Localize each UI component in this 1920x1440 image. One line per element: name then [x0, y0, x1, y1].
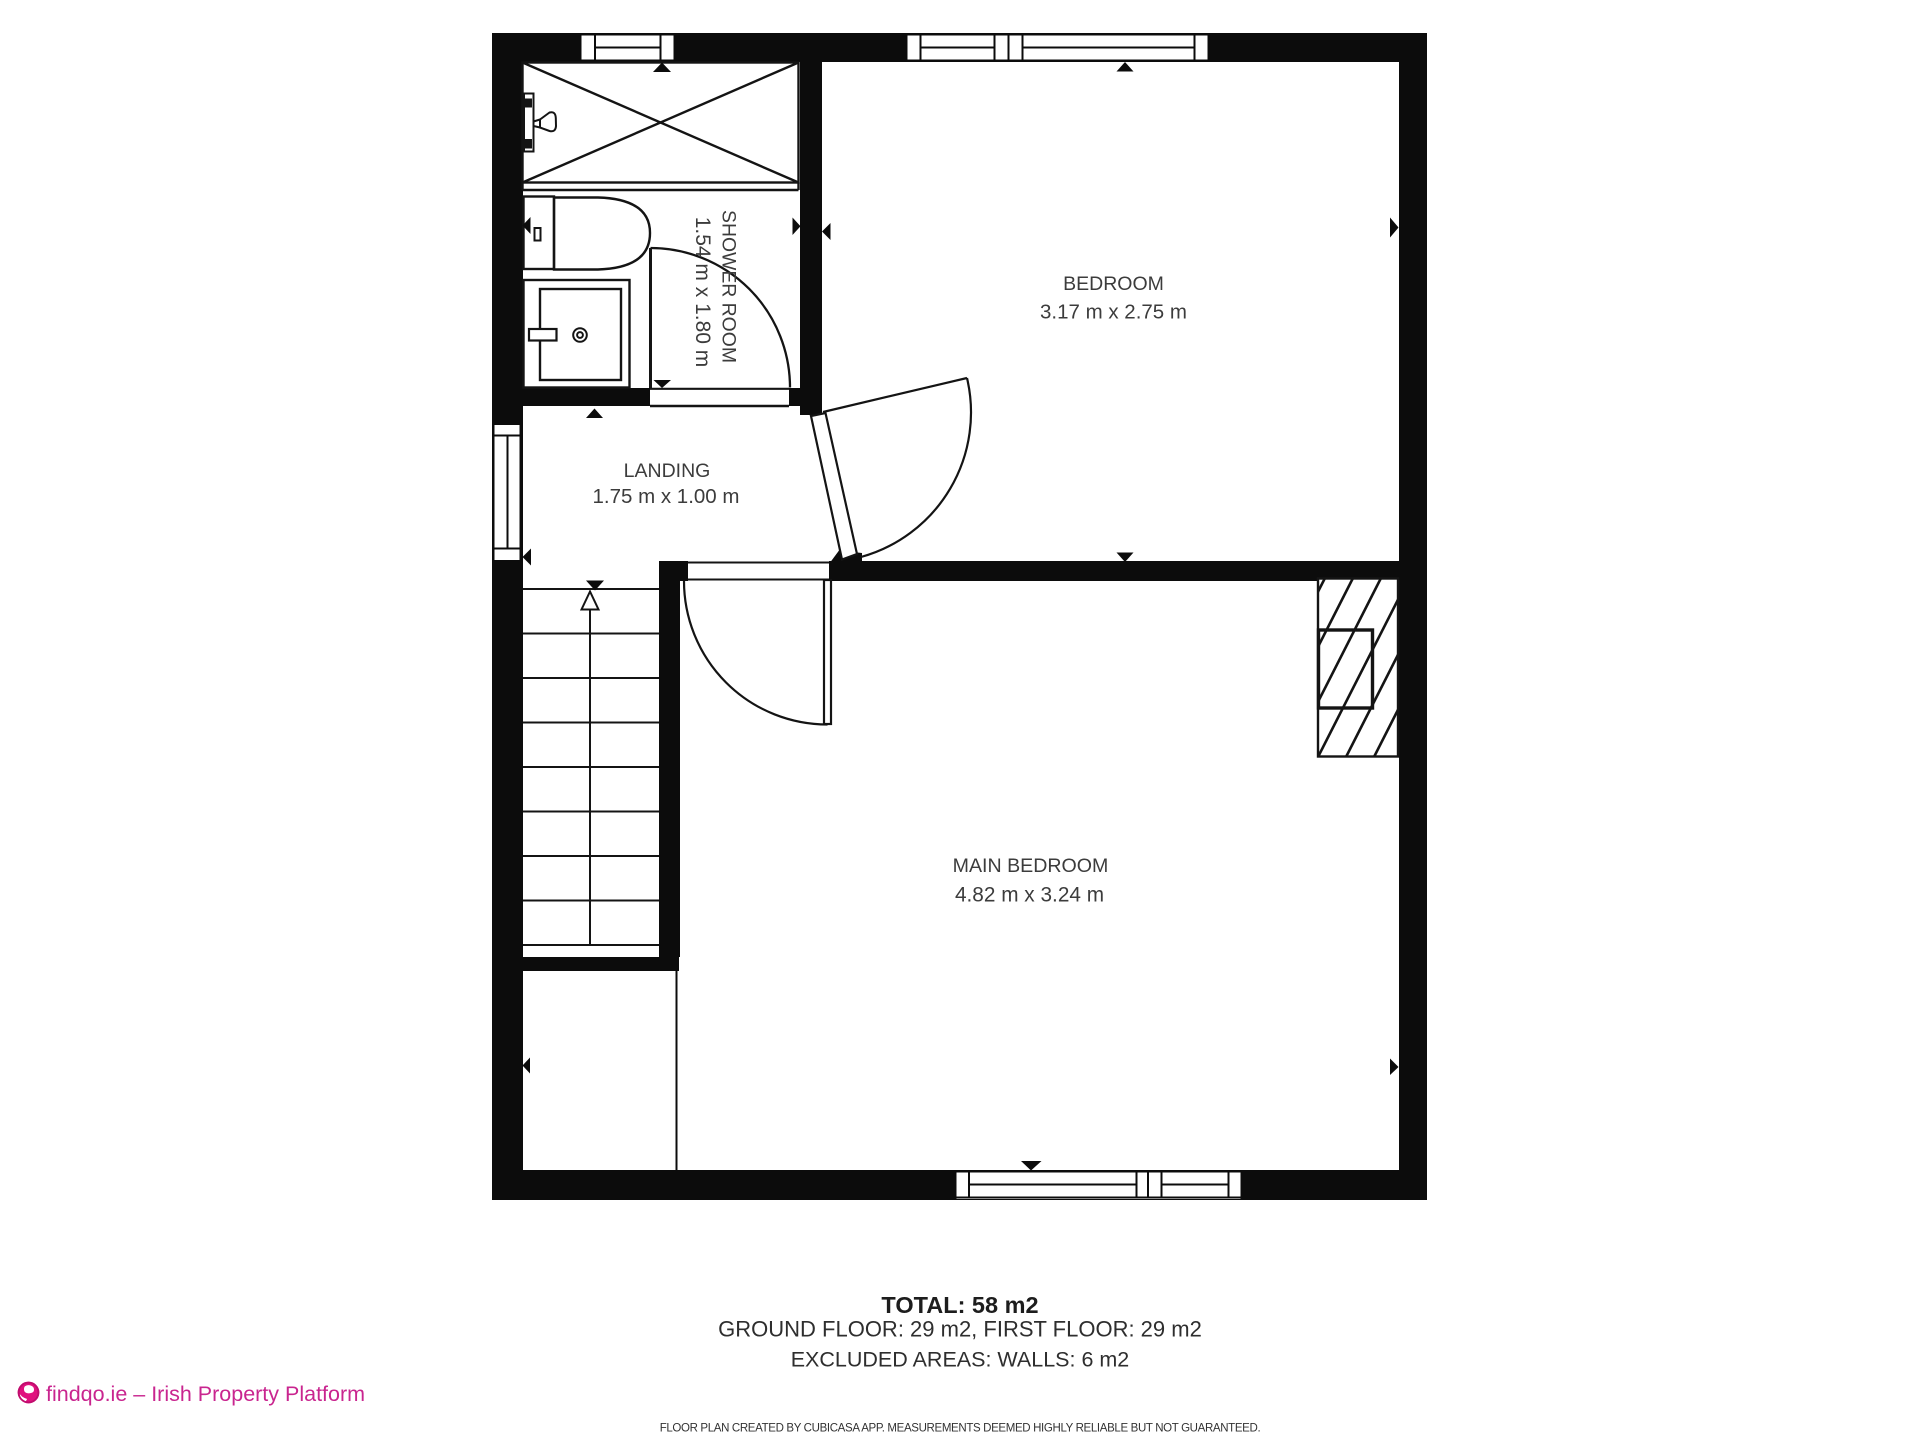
- svg-text:1.54 m x 1.80 m: 1.54 m x 1.80 m: [691, 217, 714, 368]
- svg-text:GROUND FLOOR: 29 m2, FIRST FLO: GROUND FLOOR: 29 m2, FIRST FLOOR: 29 m2: [718, 1317, 1202, 1342]
- svg-text:BEDROOM: BEDROOM: [1063, 273, 1164, 295]
- svg-text:FLOOR PLAN CREATED BY CUBICASA: FLOOR PLAN CREATED BY CUBICASA APP. MEAS…: [660, 1423, 1261, 1435]
- svg-text:SHOWER ROOM: SHOWER ROOM: [718, 210, 740, 363]
- svg-text:4.82 m x 3.24 m: 4.82 m x 3.24 m: [955, 884, 1104, 907]
- svg-text:LANDING: LANDING: [624, 460, 711, 482]
- svg-text:1.75 m x 1.00 m: 1.75 m x 1.00 m: [593, 485, 740, 508]
- svg-text:3.17 m x 2.75 m: 3.17 m x 2.75 m: [1040, 301, 1187, 324]
- svg-text:TOTAL: 58 m2: TOTAL: 58 m2: [881, 1292, 1038, 1318]
- svg-text:findqo.ie – Irish Property Pla: findqo.ie – Irish Property Platform: [46, 1382, 365, 1406]
- svg-text:MAIN BEDROOM: MAIN BEDROOM: [953, 855, 1109, 877]
- svg-text:EXCLUDED AREAS: WALLS: 6 m2: EXCLUDED AREAS: WALLS: 6 m2: [791, 1348, 1130, 1372]
